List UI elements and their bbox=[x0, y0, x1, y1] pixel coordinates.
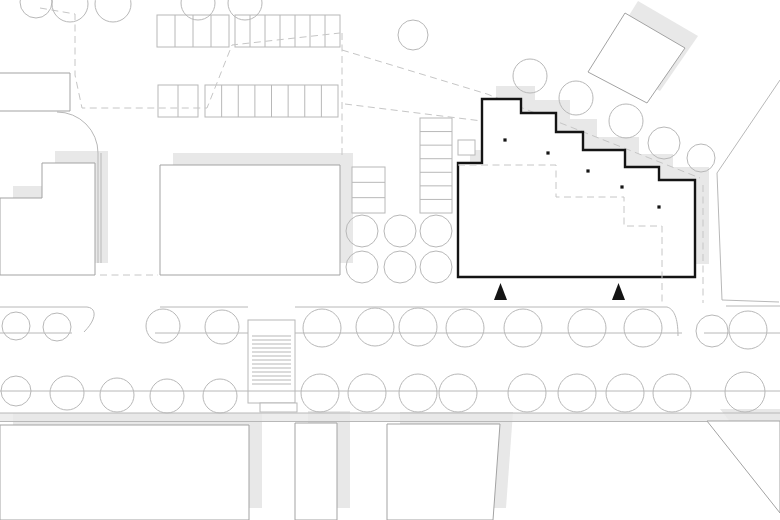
column-dot bbox=[586, 169, 589, 172]
building-south bbox=[387, 424, 500, 520]
crosswalk-stub bbox=[260, 403, 297, 412]
parking-row bbox=[235, 15, 340, 47]
site-plan bbox=[0, 0, 780, 520]
building-south-narrow bbox=[295, 423, 337, 520]
parking-row bbox=[352, 167, 385, 213]
parking-row bbox=[420, 118, 452, 213]
entry-canopy bbox=[458, 140, 475, 155]
building-middle bbox=[160, 165, 340, 275]
plaza-block bbox=[0, 425, 249, 520]
corner-block bbox=[0, 73, 70, 111]
column-dot bbox=[620, 185, 623, 188]
site-plan-viewport bbox=[0, 0, 780, 520]
column-dot bbox=[546, 151, 549, 154]
column-dot bbox=[503, 138, 506, 141]
column-dot bbox=[657, 205, 660, 208]
